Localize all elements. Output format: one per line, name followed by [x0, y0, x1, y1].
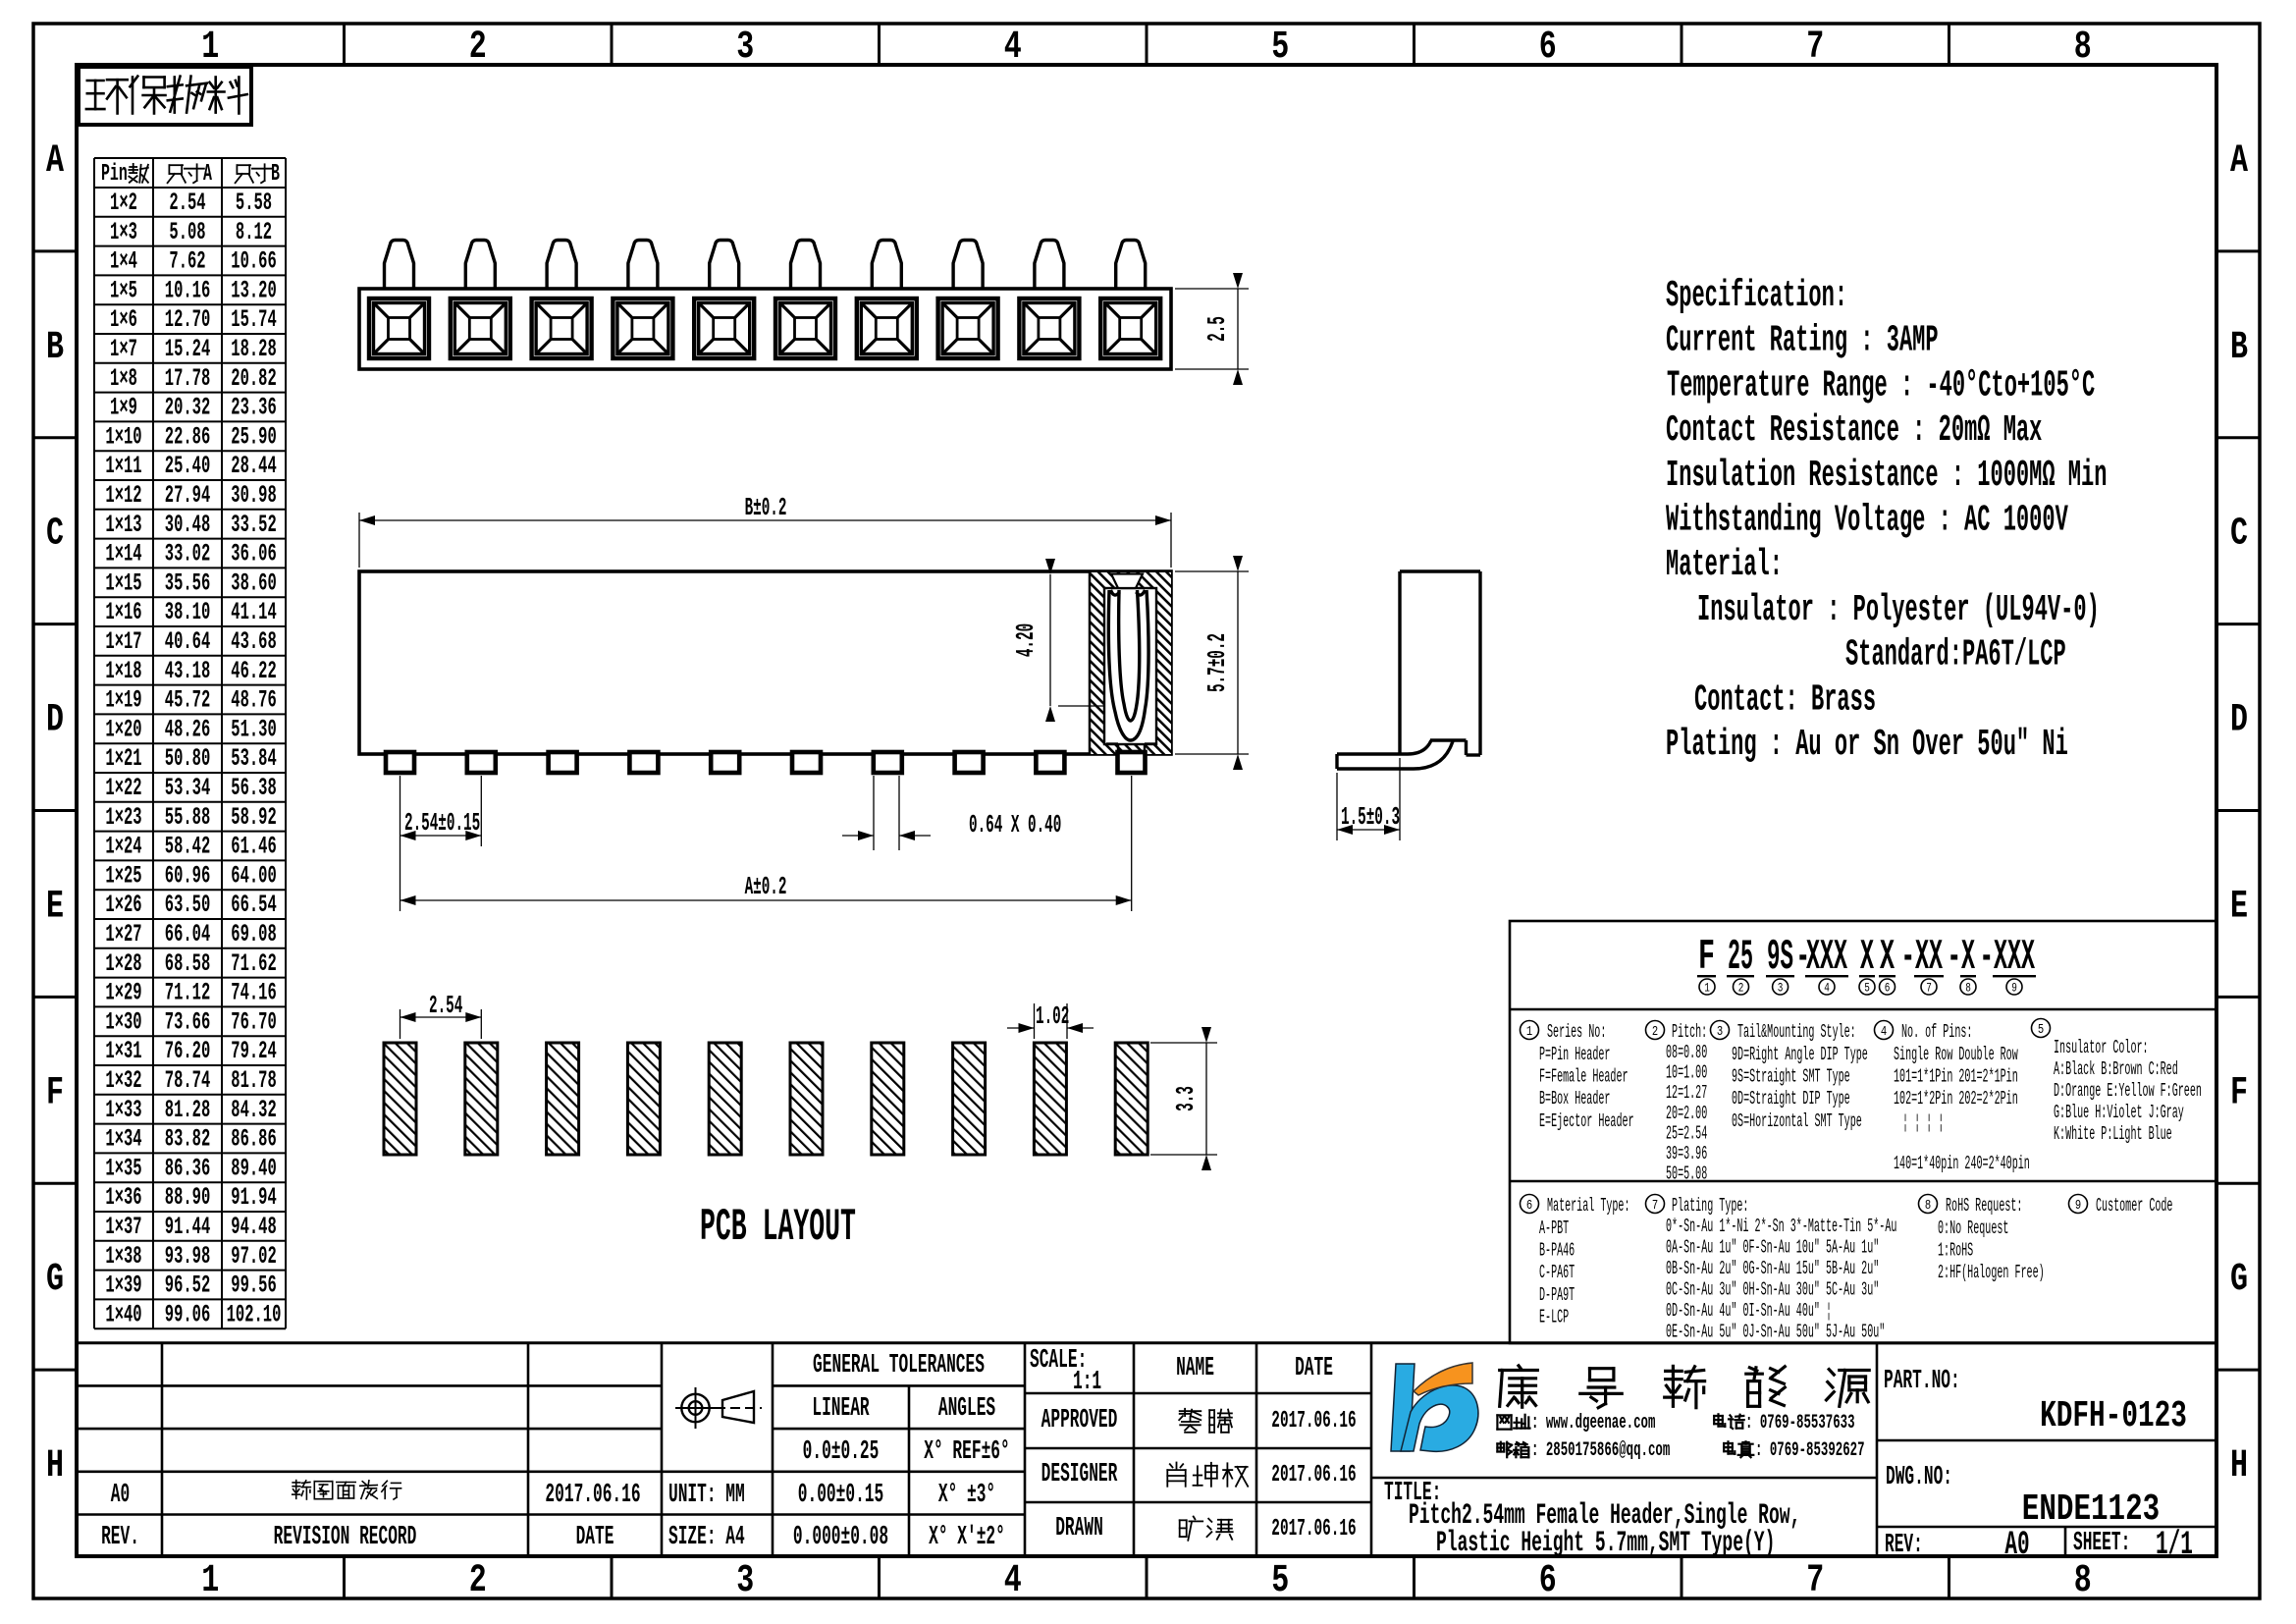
svg-text:PCB LAYOUT: PCB LAYOUT: [700, 1203, 856, 1253]
svg-text:50.80: 50.80: [165, 746, 210, 774]
svg-text:1.5±0.3: 1.5±0.3: [1341, 804, 1400, 833]
svg-text:E: E: [46, 885, 64, 929]
svg-text:5: 5: [1271, 25, 1289, 69]
svg-text:56.38: 56.38: [231, 776, 276, 803]
svg-text:B: B: [2230, 325, 2248, 369]
svg-text:4: 4: [1004, 25, 1022, 69]
svg-text:E-LCP: E-LCP: [1539, 1306, 1569, 1327]
svg-text:18.28: 18.28: [231, 337, 276, 364]
svg-text:C: C: [46, 512, 64, 556]
svg-text:2017.06.16: 2017.06.16: [1271, 1516, 1356, 1543]
svg-text:5: 5: [1864, 982, 1870, 996]
svg-text:61.46: 61.46: [231, 834, 276, 861]
svg-text:89.40: 89.40: [231, 1156, 276, 1183]
svg-text:-: -: [1948, 932, 1962, 982]
svg-text:33.02: 33.02: [165, 541, 210, 568]
svg-text:2: 2: [469, 25, 487, 69]
svg-text:E=Ejector Header: E=Ejector Header: [1539, 1110, 1634, 1132]
svg-text:: 2850175866@qq.com: : 2850175866@qq.com: [1531, 1438, 1670, 1461]
svg-text:9: 9: [2011, 982, 2017, 996]
svg-text:G: G: [46, 1257, 64, 1301]
svg-text:17.78: 17.78: [165, 366, 210, 394]
svg-text:0.0±0.25: 0.0±0.25: [803, 1435, 880, 1467]
svg-text:Material:: Material:: [1666, 545, 1783, 587]
svg-text:1×33: 1×33: [105, 1098, 141, 1125]
svg-text:REV.: REV.: [101, 1521, 139, 1552]
svg-text:XXX: XXX: [1994, 933, 2036, 982]
svg-text:RoHS Request:: RoHS Request:: [1946, 1195, 2022, 1217]
svg-text:38.10: 38.10: [165, 600, 210, 627]
svg-text:96.52: 96.52: [165, 1272, 210, 1300]
svg-text:3: 3: [736, 25, 754, 69]
svg-text:: 0769-85537633: : 0769-85537633: [1745, 1411, 1855, 1434]
svg-text:2017.06.16: 2017.06.16: [1271, 1408, 1356, 1435]
svg-text:25: 25: [1728, 933, 1753, 981]
svg-text:F: F: [46, 1070, 64, 1114]
svg-text:83.82: 83.82: [165, 1126, 210, 1154]
svg-text:1×6: 1×6: [110, 307, 137, 335]
svg-text:No. of Pins:: No. of Pins:: [1901, 1021, 1972, 1043]
svg-text:1×22: 1×22: [105, 776, 141, 803]
svg-text:1×11: 1×11: [105, 454, 141, 481]
svg-text:Temperature Range : -40°Cto+10: Temperature Range : -40°Cto+105°C: [1667, 365, 2095, 407]
svg-text:Tail&Mounting Style:: Tail&Mounting Style:: [1737, 1021, 1856, 1043]
svg-text:B: B: [46, 325, 64, 369]
svg-text:D-PA9T: D-PA9T: [1539, 1284, 1575, 1306]
svg-text:8: 8: [2074, 25, 2092, 69]
svg-text:38.60: 38.60: [231, 570, 276, 598]
svg-text:1×23: 1×23: [105, 805, 141, 833]
svg-text:1×3: 1×3: [110, 220, 137, 247]
svg-text:Customer Code: Customer Code: [2096, 1195, 2172, 1217]
svg-text:1×24: 1×24: [105, 834, 141, 861]
svg-text:Pin: Pin: [101, 160, 128, 188]
svg-text:46.22: 46.22: [231, 659, 276, 686]
svg-text:1×15: 1×15: [105, 570, 141, 598]
svg-text:27.94: 27.94: [165, 483, 210, 511]
svg-text:Plating Type:: Plating Type:: [1672, 1195, 1748, 1217]
svg-text:NAME: NAME: [1176, 1352, 1214, 1383]
svg-text:2.54: 2.54: [429, 993, 462, 1021]
svg-text:45.72: 45.72: [165, 687, 210, 715]
svg-text:UNIT: MM: UNIT: MM: [668, 1479, 745, 1510]
svg-text:53.34: 53.34: [165, 776, 210, 803]
svg-text:91.44: 91.44: [165, 1215, 210, 1242]
svg-text:1×21: 1×21: [105, 746, 141, 774]
svg-text:79.24: 79.24: [231, 1039, 276, 1066]
svg-text:4: 4: [1824, 982, 1830, 996]
svg-text:43.68: 43.68: [231, 629, 276, 657]
svg-text:71.12: 71.12: [165, 980, 210, 1007]
svg-text:76.20: 76.20: [165, 1039, 210, 1066]
svg-text:D: D: [2230, 698, 2248, 742]
svg-text:0D-Sn-Au 4u" 0I-Sn-Au 40u": 0D-Sn-Au 4u" 0I-Sn-Au 40u" ¦: [1666, 1300, 1832, 1322]
svg-text:0S=Horizontal SMT Type: 0S=Horizontal SMT Type: [1732, 1110, 1862, 1132]
svg-text:51.30: 51.30: [231, 717, 276, 744]
svg-text:Single Row Double Row: Single Row Double Row: [1894, 1044, 2018, 1065]
svg-text:68.58: 68.58: [165, 951, 210, 979]
svg-text:1×8: 1×8: [110, 366, 137, 394]
svg-text:2017.06.16: 2017.06.16: [1271, 1462, 1356, 1489]
svg-text:LINEAR: LINEAR: [812, 1392, 870, 1424]
svg-text:1:RoHS: 1:RoHS: [1938, 1239, 1973, 1261]
svg-text:A0: A0: [111, 1479, 130, 1510]
svg-text:2.5: 2.5: [1204, 316, 1233, 342]
svg-text:84.32: 84.32: [231, 1098, 276, 1125]
svg-text:A:Black B:Brown C:Red: A:Black B:Brown C:Red: [2054, 1058, 2178, 1080]
svg-text:-: -: [1901, 932, 1916, 982]
svg-text:12=1.27: 12=1.27: [1666, 1082, 1707, 1104]
svg-text:Contact Resistance : 20mΩ Max: Contact Resistance : 20mΩ Max: [1666, 410, 2042, 453]
svg-text:48.26: 48.26: [165, 717, 210, 744]
svg-text:63.50: 63.50: [165, 893, 210, 920]
svg-text:DWG.NO:: DWG.NO:: [1886, 1461, 1952, 1492]
svg-text:39=3.96: 39=3.96: [1666, 1143, 1707, 1164]
svg-text:35.56: 35.56: [165, 570, 210, 598]
svg-text:10.16: 10.16: [165, 278, 210, 305]
svg-text:REV:: REV:: [1885, 1529, 1923, 1560]
svg-text:DESIGNER: DESIGNER: [1041, 1458, 1118, 1489]
svg-text:97.02: 97.02: [231, 1244, 276, 1272]
svg-text:13.20: 13.20: [231, 278, 276, 305]
svg-text:1×26: 1×26: [105, 893, 141, 920]
svg-text:8: 8: [1925, 1198, 1931, 1214]
svg-text:9: 9: [2075, 1198, 2081, 1214]
svg-text:1×34: 1×34: [105, 1126, 141, 1154]
svg-text:K:White P:Light Blue: K:White P:Light Blue: [2054, 1123, 2172, 1145]
svg-text:73.66: 73.66: [165, 1009, 210, 1037]
svg-text:A0: A0: [2004, 1526, 2029, 1563]
svg-text:7: 7: [1926, 982, 1932, 996]
svg-text:99.56: 99.56: [231, 1272, 276, 1300]
svg-text:5: 5: [1271, 1558, 1289, 1602]
svg-text:B: B: [271, 160, 280, 188]
svg-text:X° X'±2°: X° X'±2°: [929, 1521, 1005, 1552]
svg-text:43.18: 43.18: [165, 659, 210, 686]
svg-text:1×39: 1×39: [105, 1272, 141, 1300]
svg-text:1×20: 1×20: [105, 717, 141, 744]
svg-text:23.36: 23.36: [231, 395, 276, 422]
svg-text:1×13: 1×13: [105, 513, 141, 540]
svg-text:0*-Sn-Au 1*-Ni 2*-Sn 3*-Matte-: 0*-Sn-Au 1*-Ni 2*-Sn 3*-Matte-Tin 5*-Au: [1666, 1216, 1896, 1237]
svg-text:Contact: Brass: Contact: Brass: [1694, 679, 1876, 722]
svg-text:-: -: [1796, 932, 1811, 982]
svg-text:1×18: 1×18: [105, 659, 141, 686]
svg-text:10=1.00: 10=1.00: [1666, 1061, 1707, 1083]
svg-text:A: A: [2230, 138, 2249, 183]
svg-text:08=0.80: 08=0.80: [1666, 1042, 1707, 1063]
svg-text:3: 3: [1717, 1024, 1723, 1040]
svg-text:0.64 X 0.40: 0.64 X 0.40: [969, 812, 1061, 840]
svg-text:1×29: 1×29: [105, 980, 141, 1007]
svg-text:7: 7: [1652, 1198, 1658, 1214]
svg-text:1: 1: [201, 25, 219, 69]
svg-text:SIZE: A4: SIZE: A4: [668, 1521, 745, 1552]
svg-text:25.90: 25.90: [231, 424, 276, 452]
svg-text:1×35: 1×35: [105, 1156, 141, 1183]
svg-text:7.62: 7.62: [169, 248, 205, 276]
svg-text:0D=Straight DIP Type: 0D=Straight DIP Type: [1732, 1088, 1850, 1110]
svg-text:20=2.00: 20=2.00: [1666, 1103, 1707, 1124]
svg-text:20.82: 20.82: [231, 366, 276, 394]
svg-text:6: 6: [1539, 1558, 1557, 1602]
svg-text:28.44: 28.44: [231, 454, 276, 481]
svg-text:5.58: 5.58: [236, 190, 272, 218]
svg-text:8: 8: [2074, 1558, 2092, 1602]
svg-text:50=5.08: 50=5.08: [1666, 1163, 1707, 1184]
svg-text:REVISION RECORD: REVISION RECORD: [274, 1521, 417, 1552]
svg-text:1×4: 1×4: [110, 248, 137, 276]
svg-text:7: 7: [1806, 25, 1824, 69]
svg-text:0.00±0.15: 0.00±0.15: [798, 1479, 883, 1510]
svg-text:10.66: 10.66: [231, 248, 276, 276]
svg-text:A: A: [203, 160, 212, 188]
svg-text:1×37: 1×37: [105, 1215, 141, 1242]
svg-text:55.88: 55.88: [165, 805, 210, 833]
svg-text:2017.06.16: 2017.06.16: [545, 1479, 640, 1510]
svg-text:1×14: 1×14: [105, 541, 141, 568]
svg-text:Current Rating : 3AMP: Current Rating : 3AMP: [1666, 320, 1939, 362]
svg-text:15.74: 15.74: [231, 307, 276, 335]
svg-text:¦ ¦ ¦ ¦: ¦ ¦ ¦ ¦: [1902, 1111, 1944, 1133]
svg-text:G:Blue H:Violet J:Gray: G:Blue H:Violet J:Gray: [2054, 1102, 2184, 1123]
svg-text:9S=Straight SMT Type: 9S=Straight SMT Type: [1732, 1065, 1850, 1087]
svg-text:33.52: 33.52: [231, 513, 276, 540]
svg-text:1:1: 1:1: [1073, 1366, 1101, 1397]
svg-text:ANGLES: ANGLES: [938, 1392, 995, 1424]
svg-text:H: H: [46, 1443, 64, 1488]
svg-text:8: 8: [1965, 982, 1971, 996]
svg-text:1×5: 1×5: [110, 278, 137, 305]
svg-text:4: 4: [1004, 1558, 1022, 1602]
svg-text:30.48: 30.48: [165, 513, 210, 540]
svg-text:0.000±0.08: 0.000±0.08: [793, 1521, 888, 1552]
svg-text:30.98: 30.98: [231, 483, 276, 511]
svg-text:1×10: 1×10: [105, 424, 141, 452]
svg-text:66.04: 66.04: [165, 922, 210, 949]
svg-text:D: D: [46, 698, 64, 742]
svg-text:1×2: 1×2: [110, 190, 137, 218]
svg-text:5.08: 5.08: [169, 220, 205, 247]
svg-text:1/1: 1/1: [2156, 1526, 2193, 1563]
svg-text:86.36: 86.36: [165, 1156, 210, 1183]
svg-text:Withstanding Voltage : AC 1000: Withstanding Voltage : AC 1000V: [1666, 500, 2068, 542]
svg-text:1×19: 1×19: [105, 687, 141, 715]
svg-text:E: E: [2230, 885, 2248, 929]
svg-text:12.70: 12.70: [165, 307, 210, 335]
svg-text:1×16: 1×16: [105, 600, 141, 627]
svg-text:140=1*40pin 240=2*40pin: 140=1*40pin 240=2*40pin: [1894, 1153, 2030, 1174]
svg-text:0A-Sn-Au 1u" 0F-Sn-Au 10u" 5A: 0A-Sn-Au 1u" 0F-Sn-Au 10u" 5A-Au 1u": [1666, 1236, 1879, 1258]
svg-text:2:HF(Halogen Free): 2:HF(Halogen Free): [1938, 1262, 2045, 1283]
svg-text:1×40: 1×40: [105, 1302, 141, 1329]
svg-text:0E-Sn-Au 5u" 0J-Sn-Au 50u" 5J: 0E-Sn-Au 5u" 0J-Sn-Au 50u" 5J-Au 50u": [1666, 1321, 1885, 1342]
svg-text:69.08: 69.08: [231, 922, 276, 949]
svg-text:SHEET:: SHEET:: [2073, 1527, 2130, 1558]
svg-text:1×30: 1×30: [105, 1009, 141, 1037]
svg-text:6: 6: [1539, 25, 1557, 69]
svg-text:3: 3: [736, 1558, 754, 1602]
svg-text:1: 1: [1526, 1024, 1532, 1040]
svg-text:71.62: 71.62: [231, 951, 276, 979]
svg-text:99.06: 99.06: [165, 1302, 210, 1329]
svg-text:X° ±3°: X° ±3°: [938, 1479, 995, 1510]
svg-text:1×27: 1×27: [105, 922, 141, 949]
svg-text:F: F: [1698, 933, 1715, 982]
svg-text:X: X: [1961, 933, 1976, 982]
svg-text:DATE: DATE: [576, 1521, 614, 1552]
svg-text:Insulation Resistance : 1000MΩ: Insulation Resistance : 1000MΩ Min: [1666, 455, 2107, 497]
svg-text:C-PA6T: C-PA6T: [1539, 1262, 1575, 1283]
svg-text:76.70: 76.70: [231, 1009, 276, 1037]
svg-text:94.48: 94.48: [231, 1215, 276, 1242]
svg-text:41.14: 41.14: [231, 600, 276, 627]
svg-text:15.24: 15.24: [165, 337, 210, 364]
svg-text:Insulator Color:: Insulator Color:: [2054, 1037, 2149, 1058]
svg-text:DATE: DATE: [1295, 1352, 1333, 1383]
svg-text:H: H: [2230, 1443, 2248, 1488]
svg-text:5: 5: [2038, 1022, 2044, 1038]
svg-text:25=2.54: 25=2.54: [1666, 1122, 1707, 1144]
svg-text:DRAWN: DRAWN: [1055, 1512, 1103, 1543]
svg-text:Plastic Height 5.7mm,SMT Type(: Plastic Height 5.7mm,SMT Type(Y): [1436, 1527, 1775, 1560]
svg-text:B-PA46: B-PA46: [1539, 1239, 1575, 1261]
svg-text:P=Pin Header: P=Pin Header: [1539, 1044, 1610, 1065]
svg-text:XXX: XXX: [1806, 933, 1848, 982]
svg-text:D:Orange E:Yellow F:Green: D:Orange E:Yellow F:Green: [2054, 1080, 2202, 1102]
svg-text:Material Type:: Material Type:: [1547, 1195, 1630, 1217]
svg-text:APPROVED: APPROVED: [1041, 1404, 1118, 1435]
svg-text:3.3: 3.3: [1173, 1086, 1201, 1111]
svg-text:20.32: 20.32: [165, 395, 210, 422]
svg-text:81.28: 81.28: [165, 1098, 210, 1125]
svg-text:1×36: 1×36: [105, 1185, 141, 1213]
svg-text:0B-Sn-Au 2u" 0G-Sn-Au 15u" 5B: 0B-Sn-Au 2u" 0G-Sn-Au 15u" 5B-Au 2u": [1666, 1258, 1879, 1279]
svg-text:88.90: 88.90: [165, 1185, 210, 1213]
svg-text:6: 6: [1526, 1198, 1532, 1214]
svg-text:A-PBT: A-PBT: [1539, 1218, 1569, 1239]
svg-text:XX: XX: [1915, 933, 1944, 982]
svg-text:66.54: 66.54: [231, 893, 276, 920]
svg-text:1: 1: [1704, 982, 1710, 996]
svg-text:8.12: 8.12: [236, 220, 272, 247]
svg-text:Insulator : Polyester (UL94V-0: Insulator : Polyester (UL94V-0): [1697, 589, 2100, 631]
svg-text:7: 7: [1806, 1558, 1824, 1602]
svg-text:48.76: 48.76: [231, 687, 276, 715]
svg-text:1×25: 1×25: [105, 863, 141, 891]
svg-text:1: 1: [201, 1558, 219, 1602]
svg-text:F=Female Header: F=Female Header: [1539, 1065, 1629, 1087]
svg-text:102=1*2Pin 202=2*2Pin: 102=1*2Pin 202=2*2Pin: [1894, 1088, 2018, 1110]
svg-text:Plating : Au or Sn Over 50u" N: Plating : Au or Sn Over 50u" Ni: [1666, 724, 2068, 766]
svg-text:6: 6: [1885, 982, 1891, 996]
svg-text:74.16: 74.16: [231, 980, 276, 1007]
svg-text:1×28: 1×28: [105, 951, 141, 979]
svg-text:C: C: [2230, 512, 2248, 556]
svg-text:5.7±0.2: 5.7±0.2: [1204, 633, 1233, 692]
svg-text:KDFH-0123: KDFH-0123: [2040, 1394, 2187, 1436]
svg-text:91.94: 91.94: [231, 1185, 276, 1213]
svg-text:: www.dgeenae.com: : www.dgeenae.com: [1531, 1411, 1655, 1434]
svg-text:GENERAL TOLERANCES: GENERAL TOLERANCES: [813, 1349, 985, 1380]
svg-text:36.06: 36.06: [231, 541, 276, 568]
svg-text:2.54: 2.54: [169, 190, 205, 218]
svg-text:A±0.2: A±0.2: [745, 874, 787, 902]
svg-text:3: 3: [1778, 982, 1784, 996]
svg-text:1×7: 1×7: [110, 337, 137, 364]
svg-text:9D=Right Angle DIP Type: 9D=Right Angle DIP Type: [1732, 1044, 1868, 1065]
svg-text:60.96: 60.96: [165, 863, 210, 891]
svg-text:2: 2: [1652, 1024, 1658, 1040]
svg-text:A: A: [46, 138, 65, 183]
svg-text:Standard:PA6T/LCP: Standard:PA6T/LCP: [1845, 634, 2066, 677]
svg-text:2.54±0.15: 2.54±0.15: [404, 810, 480, 839]
svg-text:B=Box Header: B=Box Header: [1539, 1088, 1610, 1110]
svg-text:F: F: [2230, 1070, 2248, 1114]
svg-text:2: 2: [1738, 982, 1744, 996]
svg-text:Series No:: Series No:: [1547, 1021, 1606, 1043]
svg-text:ENDE1123: ENDE1123: [2022, 1489, 2160, 1532]
svg-text:X: X: [1860, 933, 1875, 982]
svg-text:X: X: [1880, 932, 1895, 981]
svg-text:86.86: 86.86: [231, 1126, 276, 1154]
svg-text:22.86: 22.86: [165, 424, 210, 452]
svg-text:1.02: 1.02: [1036, 1003, 1069, 1032]
svg-text:81.78: 81.78: [231, 1068, 276, 1096]
svg-text:58.42: 58.42: [165, 834, 210, 861]
svg-text:B±0.2: B±0.2: [745, 495, 787, 523]
svg-text:X° REF±6°: X° REF±6°: [924, 1435, 1009, 1467]
svg-text:Pitch:: Pitch:: [1672, 1021, 1707, 1043]
svg-text:40.64: 40.64: [165, 629, 210, 657]
svg-text:1×17: 1×17: [105, 629, 141, 657]
svg-text:25.40: 25.40: [165, 454, 210, 481]
svg-text:4: 4: [1881, 1024, 1887, 1040]
svg-text:0C-Sn-Au 3u" 0H-Sn-Au 30u" 5C: 0C-Sn-Au 3u" 0H-Sn-Au 30u" 5C-Au 3u": [1666, 1278, 1879, 1300]
svg-text:53.84: 53.84: [231, 746, 276, 774]
svg-text:1×32: 1×32: [105, 1068, 141, 1096]
svg-text:93.98: 93.98: [165, 1244, 210, 1272]
svg-text:4.20: 4.20: [1013, 623, 1041, 657]
svg-text:PART.NO:: PART.NO:: [1884, 1365, 1960, 1396]
svg-text:0:No Request: 0:No Request: [1938, 1218, 2008, 1239]
svg-text:102.10: 102.10: [227, 1302, 282, 1329]
svg-text:1×12: 1×12: [105, 483, 141, 511]
svg-text:101=1*1Pin 201=2*1Pin: 101=1*1Pin 201=2*1Pin: [1894, 1065, 2018, 1087]
svg-text:1×9: 1×9: [110, 395, 137, 422]
svg-text:G: G: [2230, 1257, 2248, 1301]
svg-text:Specification:: Specification:: [1666, 275, 1847, 317]
svg-text:1×38: 1×38: [105, 1244, 141, 1272]
svg-text:1×31: 1×31: [105, 1039, 141, 1066]
svg-text:58.92: 58.92: [231, 805, 276, 833]
svg-text:78.74: 78.74: [165, 1068, 210, 1096]
svg-text:64.00: 64.00: [231, 863, 276, 891]
svg-text:-: -: [1980, 932, 1995, 982]
svg-text:: 0769-85392627: : 0769-85392627: [1755, 1438, 1865, 1461]
svg-text:9S: 9S: [1767, 934, 1793, 982]
svg-text:2: 2: [469, 1558, 487, 1602]
